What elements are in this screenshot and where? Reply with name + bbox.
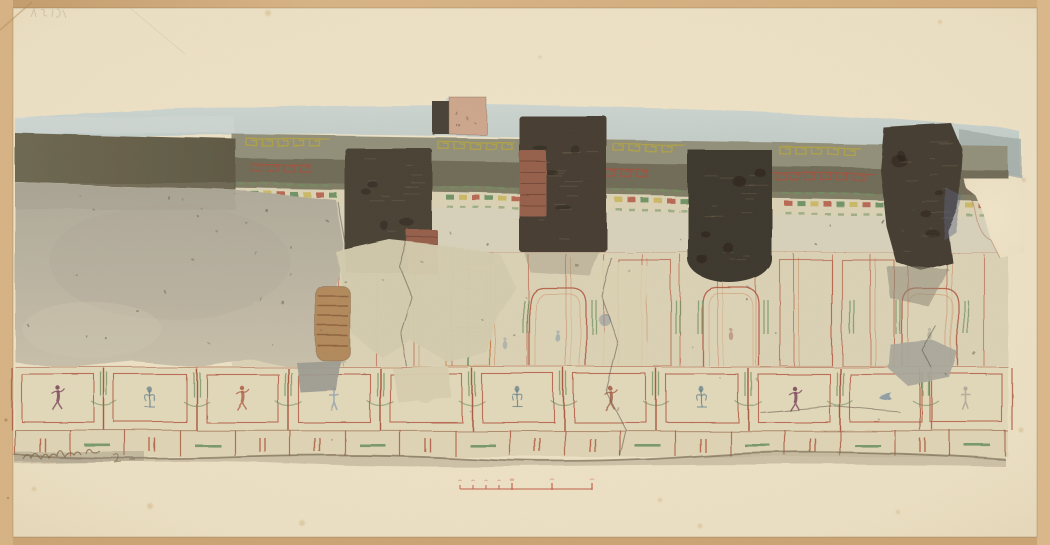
artwork-scan [0, 0, 1050, 545]
paper-grain [0, 0, 1050, 545]
painting-canvas [0, 0, 1050, 545]
